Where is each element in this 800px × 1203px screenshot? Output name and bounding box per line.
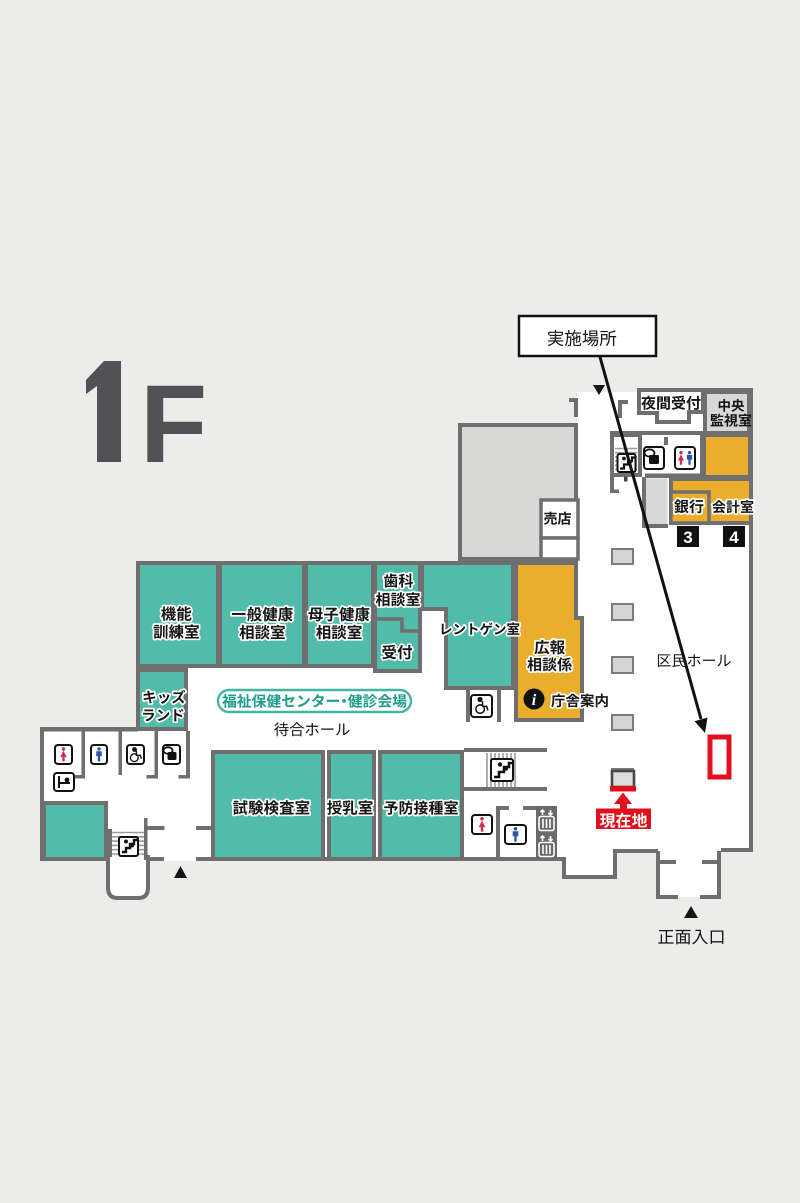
svg-text:4: 4 <box>729 528 739 547</box>
svg-text:F: F <box>140 363 207 486</box>
svg-text:i: i <box>532 692 537 709</box>
svg-text:3: 3 <box>683 528 692 547</box>
